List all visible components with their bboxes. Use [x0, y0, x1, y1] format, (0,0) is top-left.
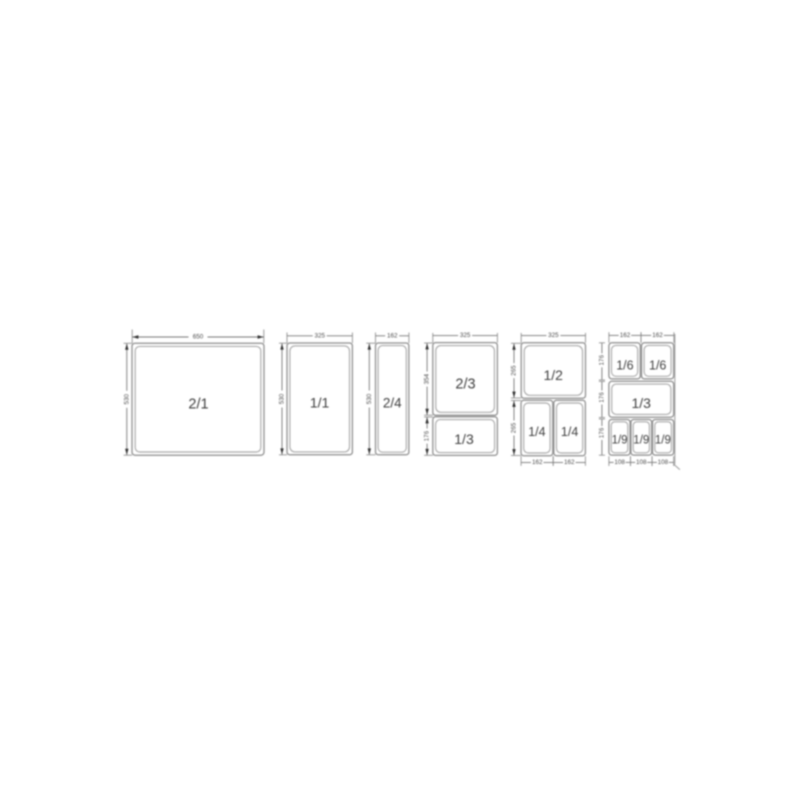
svg-text:265: 265 — [511, 365, 518, 376]
svg-text:108: 108 — [658, 459, 669, 466]
svg-text:176: 176 — [598, 355, 605, 366]
svg-text:530: 530 — [123, 393, 130, 404]
svg-text:108: 108 — [636, 459, 647, 466]
svg-text:162: 162 — [564, 459, 575, 466]
svg-text:162: 162 — [532, 459, 543, 466]
svg-text:354: 354 — [424, 373, 431, 384]
svg-text:2/1: 2/1 — [188, 396, 208, 412]
svg-text:1/9: 1/9 — [612, 434, 628, 446]
svg-text:176: 176 — [424, 430, 431, 441]
svg-text:1/4: 1/4 — [528, 425, 545, 439]
svg-text:530: 530 — [366, 393, 373, 404]
svg-text:2/3: 2/3 — [455, 377, 475, 393]
svg-text:2/4: 2/4 — [383, 396, 402, 411]
svg-text:325: 325 — [314, 332, 325, 339]
svg-text:162: 162 — [652, 332, 663, 339]
svg-text:325: 325 — [548, 332, 559, 339]
svg-text:176: 176 — [598, 427, 605, 438]
svg-text:1/6: 1/6 — [649, 358, 666, 372]
svg-text:1/9: 1/9 — [633, 434, 649, 446]
svg-text:1/6: 1/6 — [616, 358, 633, 372]
svg-text:1/2: 1/2 — [543, 367, 563, 383]
svg-text:162: 162 — [387, 332, 398, 339]
svg-text:176: 176 — [598, 392, 605, 403]
svg-text:325: 325 — [460, 332, 471, 339]
svg-text:1/3: 1/3 — [454, 431, 474, 447]
svg-text:1/3: 1/3 — [631, 395, 651, 411]
svg-text:650: 650 — [193, 334, 204, 341]
svg-text:1/9: 1/9 — [655, 434, 671, 446]
svg-text:530: 530 — [279, 393, 286, 404]
svg-text:265: 265 — [511, 422, 518, 433]
svg-text:108: 108 — [614, 459, 625, 466]
svg-text:1/4: 1/4 — [561, 425, 578, 439]
svg-text:1/1: 1/1 — [310, 395, 330, 411]
svg-text:162: 162 — [620, 332, 631, 339]
